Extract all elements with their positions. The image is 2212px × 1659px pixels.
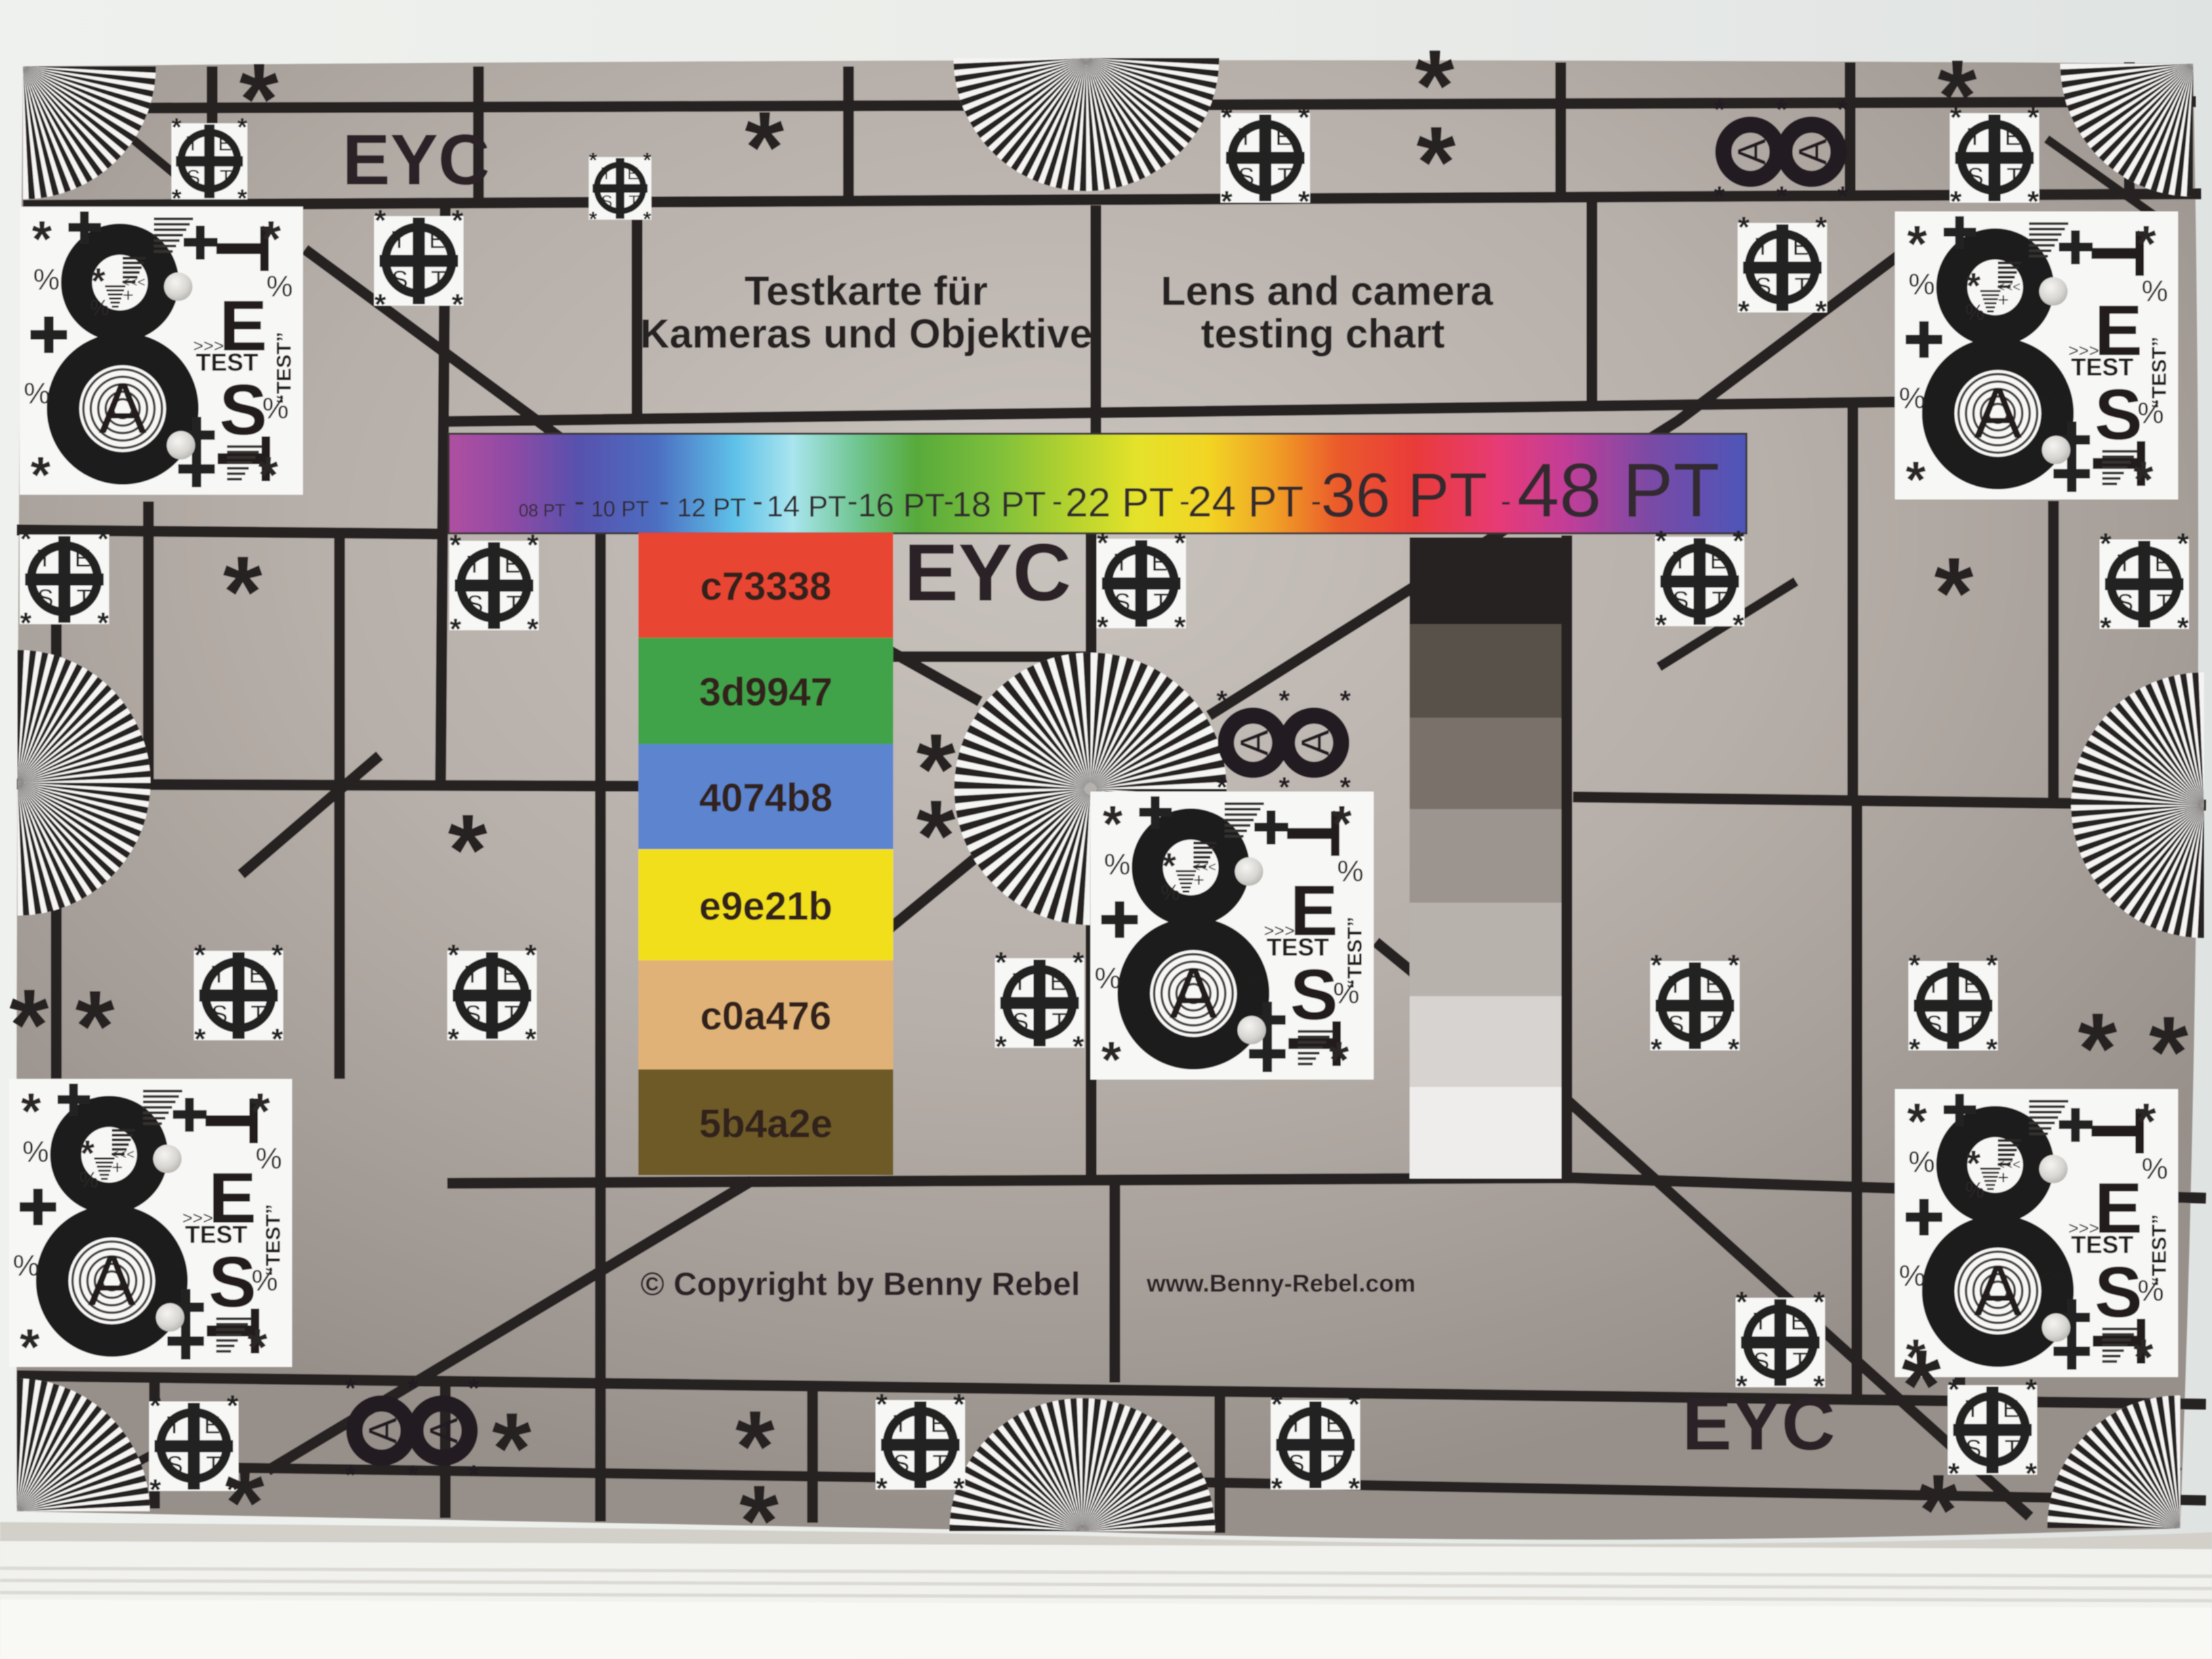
svg-text:*: *: [239, 42, 279, 156]
svg-text:c73338: c73338: [700, 565, 832, 609]
svg-text:*: *: [1938, 39, 1978, 152]
svg-text:-: -: [943, 483, 954, 518]
svg-text:EYC: EYC: [1682, 1382, 1835, 1466]
svg-text:www.Benny-Rebel.com: www.Benny-Rebel.com: [1146, 1269, 1416, 1297]
svg-text:5b4a2e: 5b4a2e: [699, 1102, 833, 1146]
svg-text:-: -: [1311, 483, 1321, 518]
svg-text:*: *: [448, 793, 488, 907]
svg-text:36 PT: 36 PT: [1321, 461, 1487, 530]
svg-text:*: *: [492, 1391, 532, 1505]
svg-text:24 PT: 24 PT: [1188, 477, 1304, 526]
svg-text:-: -: [1500, 483, 1511, 518]
svg-text:c0a476: c0a476: [700, 994, 832, 1038]
svg-text:18 PT: 18 PT: [952, 485, 1046, 525]
svg-text:*: *: [223, 535, 263, 649]
svg-text:*: *: [2078, 991, 2118, 1105]
svg-text:-: -: [1052, 483, 1062, 518]
svg-text:© Copyright by Benny Rebel: © Copyright by Benny Rebel: [640, 1267, 1080, 1303]
svg-text:10 PT: 10 PT: [591, 497, 649, 521]
svg-text:*: *: [1902, 1328, 1942, 1442]
svg-text:Kameras und Objektive: Kameras und Objektive: [640, 311, 1092, 356]
svg-text:3d9947: 3d9947: [699, 670, 833, 714]
svg-text:-: -: [574, 483, 584, 518]
svg-text:4074b8: 4074b8: [699, 776, 833, 820]
svg-text:-: -: [847, 483, 857, 518]
svg-text:*: *: [916, 779, 956, 893]
svg-text:e9e21b: e9e21b: [699, 884, 833, 928]
svg-text:-: -: [1179, 483, 1189, 518]
svg-text:12 PT: 12 PT: [677, 494, 745, 523]
svg-text:*: *: [75, 969, 115, 1083]
svg-text:*: *: [9, 968, 49, 1082]
svg-text:*: *: [1934, 536, 1974, 650]
svg-text:*: *: [745, 90, 785, 204]
svg-text:Lens and camera: Lens and camera: [1161, 268, 1494, 314]
svg-text:22 PT: 22 PT: [1065, 480, 1174, 525]
svg-text:*: *: [2149, 995, 2189, 1109]
svg-text:EYC: EYC: [904, 527, 1071, 618]
svg-text:08 PT: 08 PT: [518, 500, 565, 520]
svg-text:16 PT: 16 PT: [858, 488, 945, 524]
svg-text:14 PT: 14 PT: [766, 490, 846, 523]
svg-text:-: -: [659, 483, 669, 518]
svg-text:-: -: [752, 483, 762, 518]
svg-text:48 PT: 48 PT: [1517, 448, 1720, 533]
svg-text:testing chart: testing chart: [1201, 311, 1445, 356]
svg-text:Testkarte für: Testkarte für: [744, 268, 987, 314]
svg-text:*: *: [1416, 105, 1456, 219]
svg-text:EYC: EYC: [342, 120, 490, 200]
